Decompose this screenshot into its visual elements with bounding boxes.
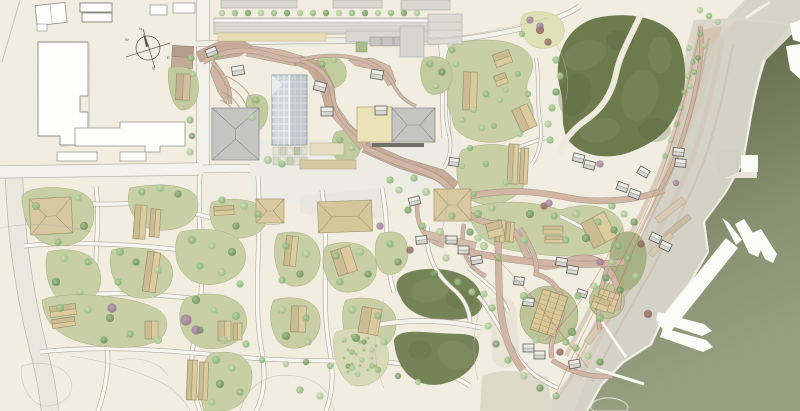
svg-text:E: E: [167, 55, 170, 60]
svg-text:N: N: [139, 26, 142, 31]
svg-text:W: W: [125, 37, 129, 42]
svg-text:S: S: [152, 66, 155, 71]
